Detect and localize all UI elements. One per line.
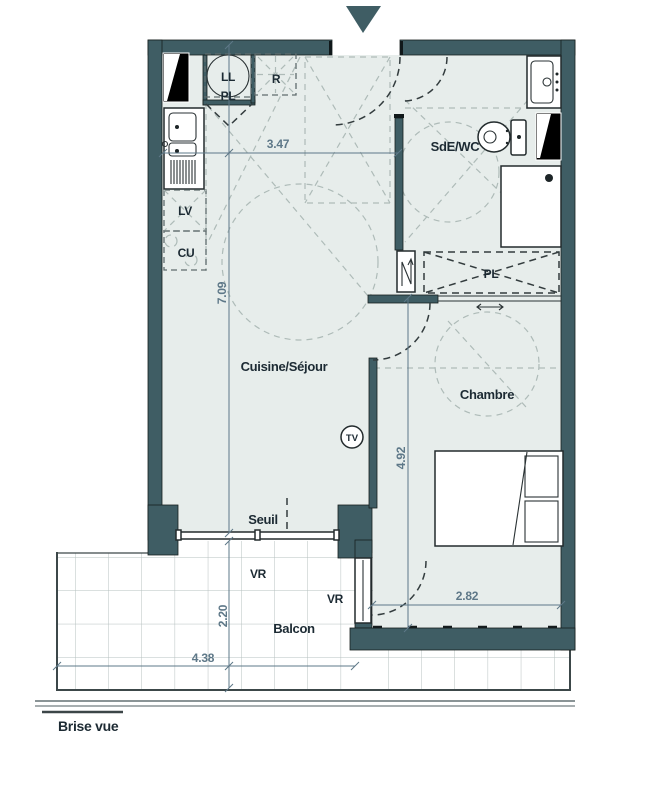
dim-bedroom-depth: 4.92 (394, 446, 408, 469)
label-dishwasher: LV (178, 204, 192, 218)
dim-apartment-depth: 7.09 (215, 281, 229, 304)
bedroom-balcony-door (355, 558, 371, 623)
bed (435, 451, 563, 546)
bathroom-window-icon (536, 113, 561, 160)
partition-bedroom (369, 358, 377, 508)
label-kitchen-living: Cuisine/Séjour (241, 359, 328, 374)
kitchen-window-icon (163, 53, 189, 102)
partition-bathroom (395, 118, 403, 250)
entrance-arrow-icon (346, 6, 381, 33)
floor-plan-drawing: 3.47 7.09 2.20 4.92 2.82 4.38 TV Cuisine… (0, 0, 670, 800)
kitchen-sink (163, 108, 205, 189)
label-shower-wc: SdE/WC (431, 139, 481, 154)
wall-bottom-left-corner (148, 505, 178, 555)
partition-closet (368, 295, 438, 303)
wall-top-right (400, 40, 575, 55)
label-bedroom: Chambre (460, 387, 514, 402)
wall-bedroom-bottom (350, 628, 575, 650)
label-entry-closet: PL (221, 89, 236, 103)
label-cooktop: CU (178, 246, 195, 260)
tv-marker: TV (341, 426, 363, 448)
label-roller-shutter-left: VR (250, 567, 267, 581)
toilet (478, 120, 526, 155)
shower-tray (501, 166, 561, 247)
wall-right (561, 40, 575, 650)
tv-label: TV (346, 433, 359, 444)
label-roller-shutter-right: VR (327, 592, 344, 606)
dim-bedroom-width: 2.82 (456, 589, 479, 603)
label-balcony: Balcon (273, 621, 315, 636)
radiator (397, 251, 415, 292)
dim-balcony-width: 4.38 (192, 651, 215, 665)
floor-plan: 3.47 7.09 2.20 4.92 2.82 4.38 TV Cuisine… (0, 0, 670, 800)
label-fridge: R (272, 72, 281, 86)
dim-living-width: 3.47 (267, 137, 290, 151)
label-bedroom-closet: PL (484, 267, 499, 281)
label-privacy-screen: Brise vue (58, 718, 119, 734)
washbasin (527, 56, 561, 108)
privacy-screen: Brise vue (35, 701, 575, 734)
label-washing-machine: LL (221, 70, 235, 84)
label-threshold: Seuil (248, 512, 278, 527)
wall-left (148, 40, 162, 540)
dim-balcony-depth: 2.20 (216, 604, 230, 627)
